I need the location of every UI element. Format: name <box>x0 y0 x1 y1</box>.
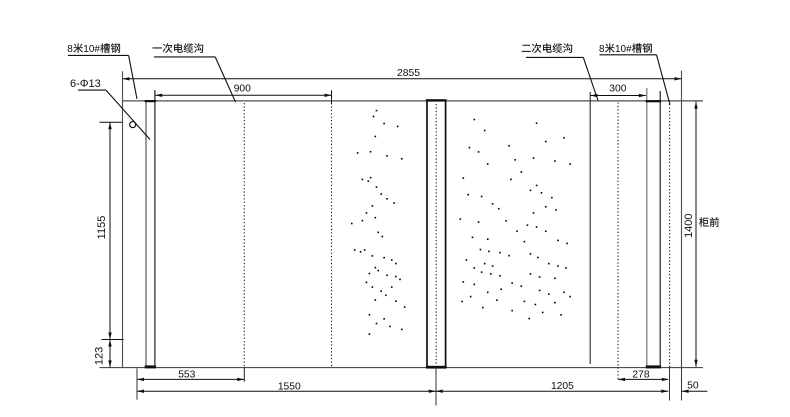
svg-text:2855: 2855 <box>397 68 420 79</box>
svg-text:1155: 1155 <box>96 216 108 240</box>
svg-text:123: 123 <box>93 347 105 365</box>
svg-text:10#: 10# <box>615 44 632 55</box>
svg-text:1550: 1550 <box>278 381 301 392</box>
svg-text:6-Φ13: 6-Φ13 <box>70 78 101 90</box>
svg-text:300: 300 <box>609 84 626 95</box>
svg-text:553: 553 <box>178 370 195 381</box>
svg-text:278: 278 <box>632 370 649 381</box>
svg-text:10#: 10# <box>83 44 100 55</box>
svg-text:1400: 1400 <box>683 213 695 237</box>
svg-text:8: 8 <box>67 44 73 55</box>
svg-text:8: 8 <box>599 44 605 55</box>
svg-text:1205: 1205 <box>551 381 574 392</box>
svg-text:50: 50 <box>687 381 699 392</box>
svg-text:900: 900 <box>234 84 251 95</box>
